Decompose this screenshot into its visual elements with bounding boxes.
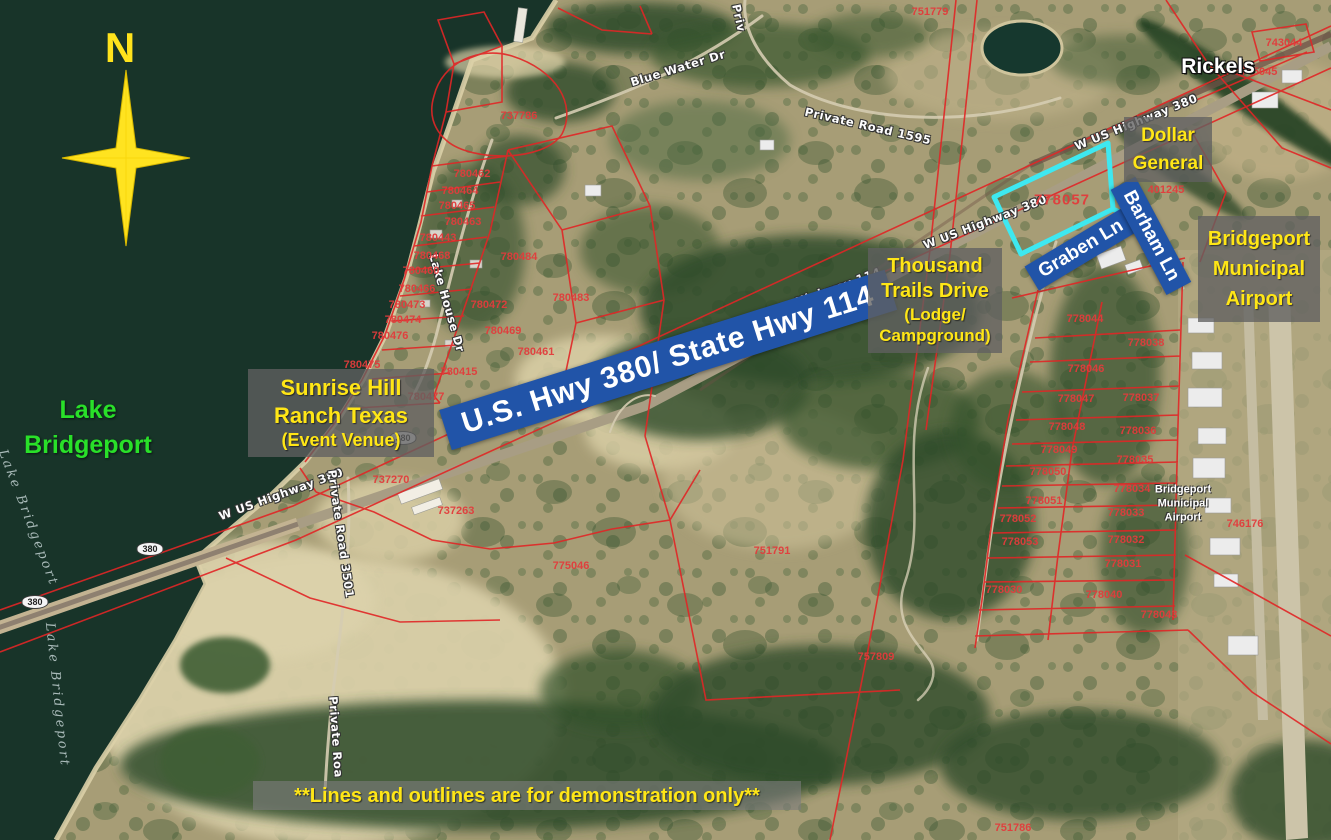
place-label-rickels: Rickels — [1181, 55, 1255, 79]
highway-380-shield: 380 — [136, 542, 163, 556]
parcel-number: 751779 — [912, 6, 949, 18]
parcel-number: 780483 — [553, 292, 590, 304]
parcel-number: 778040 — [1086, 589, 1123, 601]
parcel-number: 778037 — [1123, 392, 1160, 404]
parcel-number: 778051 — [1026, 495, 1063, 507]
parcel-number: 780465 — [439, 200, 476, 212]
parcel-number: 780466 — [399, 283, 436, 295]
parcel-number: 778052 — [1000, 513, 1037, 525]
parcel-number: 778032 — [1108, 534, 1145, 546]
parcel-number: 780462 — [454, 168, 491, 180]
parcel-number: 780476 — [372, 330, 409, 342]
parcel-number: 780484 — [501, 251, 538, 263]
parcel-number: 780443 — [420, 232, 457, 244]
parcel-number: 778048 — [1049, 421, 1086, 433]
parcel-number: 780474 — [385, 314, 422, 326]
airport-map-label: Bridgeport Municipal Airport — [1155, 483, 1211, 524]
parcel-number: 757809 — [858, 651, 895, 663]
parcel-number: 778038 — [1128, 337, 1165, 349]
callout-sunrise-hill-ranch: Sunrise Hill Ranch Texas (Event Venue) — [248, 369, 434, 457]
parcel-number: 780463 — [445, 216, 482, 228]
compass-rose: N — [60, 20, 192, 245]
disclaimer-banner: **Lines and outlines are for demonstrati… — [253, 781, 801, 810]
lake-bridgeport-label: Lake Bridgeport — [24, 393, 152, 463]
parcel-number: 778044 — [1067, 313, 1104, 325]
parcel-number: 780469 — [485, 325, 522, 337]
parcel-number: 778035 — [1117, 454, 1154, 466]
parcel-number: 780415 — [441, 366, 478, 378]
parcel-number: 778049 — [1041, 444, 1078, 456]
parcel-number: 737263 — [438, 505, 475, 517]
callout-thousand-trails: Thousand Trails Drive (Lodge/ Campground… — [868, 248, 1002, 353]
compass-north-label: N — [105, 24, 135, 72]
parcel-number: 401245 — [1148, 184, 1185, 196]
parcel-number: 778053 — [1002, 536, 1039, 548]
parcel-number: 778030 — [986, 584, 1023, 596]
parcel-number: 746176 — [1227, 518, 1264, 530]
parcel-number: 775046 — [553, 560, 590, 572]
parcel-number: 778036 — [1120, 425, 1157, 437]
parcel-number: 778031 — [1105, 558, 1142, 570]
parcel-number: 751786 — [995, 822, 1032, 834]
parcel-number: 778047 — [1058, 393, 1095, 405]
callout-bridgeport-airport: Bridgeport Municipal Airport — [1198, 216, 1320, 322]
parcel-number: 780473 — [389, 299, 426, 311]
compass-star-icon — [60, 68, 192, 248]
callout-dollar-general: Dollar General — [1124, 117, 1212, 182]
parcel-number: 737786 — [501, 110, 538, 122]
parcel-number: 751791 — [754, 545, 791, 557]
highway-380-shield: 380 — [21, 595, 48, 609]
parcel-number: 778033 — [1108, 507, 1145, 519]
parcel-number: 778057 — [1034, 192, 1090, 209]
parcel-number: 780468 — [414, 250, 451, 262]
parcel-number: 778043 — [1141, 609, 1178, 621]
parcel-number: 778046 — [1068, 363, 1105, 375]
parcel-number: 780461 — [518, 346, 555, 358]
parcel-number: 780464 — [442, 185, 479, 197]
parcel-number: 778050 — [1030, 466, 1067, 478]
satellite-map: N Lake BridgeportLake Bridgeport Blue Wa… — [0, 0, 1331, 840]
parcel-number: 780460 — [403, 265, 440, 277]
parcel-number: 780472 — [471, 299, 508, 311]
parcel-number: 778034 — [1114, 483, 1151, 495]
parcel-number: 743044 — [1266, 37, 1303, 49]
parcel-number: 737270 — [373, 474, 410, 486]
